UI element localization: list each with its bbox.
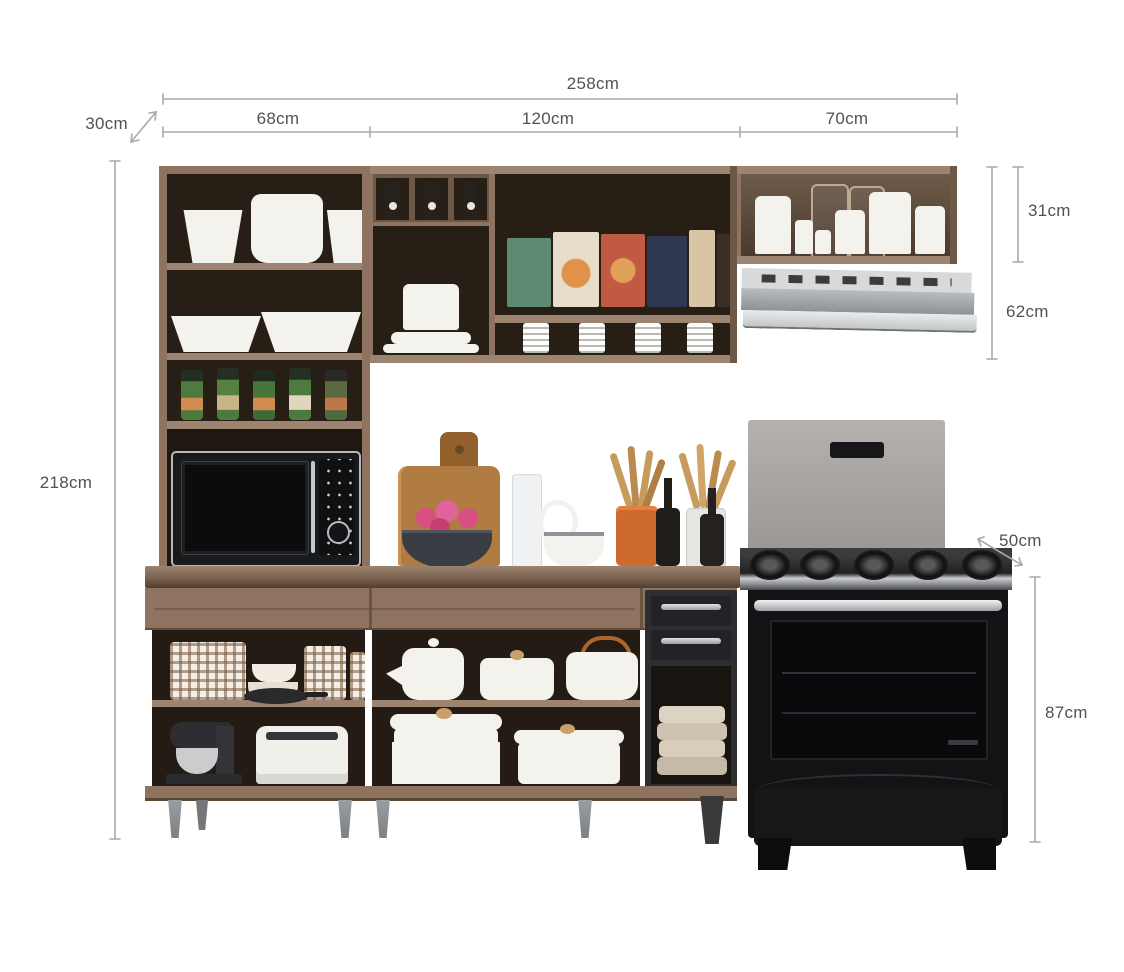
countertop: [145, 566, 740, 588]
left-cabinet-shelf-section-1: [167, 174, 362, 263]
dim-label-upper-assembly-height: 62cm: [1006, 302, 1049, 321]
folded-towel: [657, 723, 727, 740]
kettle-body: [566, 652, 638, 700]
canister: [869, 192, 911, 254]
canister: [795, 220, 813, 254]
fruit: [458, 508, 478, 528]
dim-label-upper-cabinet-height: 31cm: [1028, 201, 1071, 220]
burner: [750, 550, 790, 580]
base-drawer-unit: [645, 590, 737, 790]
range-hood-vents: [762, 274, 952, 286]
canister: [915, 206, 945, 254]
cutting-board-hole: [455, 445, 464, 454]
dim-label-wall-depth: 30cm: [70, 114, 128, 133]
cabinet-leg: [576, 800, 594, 838]
stove-body: [748, 590, 1008, 838]
patterned-canister: [350, 652, 365, 700]
dim-label-left-section: 68cm: [238, 109, 318, 128]
stockpot-knob: [436, 708, 452, 719]
white-bowl: [544, 532, 604, 568]
oven-rack-line: [782, 672, 976, 674]
microwave-niche: [167, 429, 362, 568]
spice-jar: [523, 323, 549, 353]
wine-rack: [373, 174, 489, 222]
cabinet-bottom-board: [370, 355, 737, 363]
dim-label-total-height: 218cm: [26, 473, 106, 492]
base-bottom-board: [145, 786, 737, 801]
stove-leg: [758, 838, 792, 870]
spice-jar: [635, 323, 661, 353]
cabinet-leg: [166, 800, 184, 838]
dim-total-height-line: [110, 161, 120, 839]
spice-bottle: [217, 368, 239, 420]
middle-cabinet-niche: [373, 226, 489, 355]
toaster-slots: [266, 732, 338, 740]
shelf-board: [167, 421, 362, 429]
cereal-box: [553, 232, 599, 307]
spice-jar: [687, 323, 713, 353]
range-hood-visor: [743, 310, 977, 333]
canister: [835, 210, 865, 254]
wine-cell: [376, 178, 409, 220]
wine-cell: [415, 178, 448, 220]
drawer: [651, 630, 731, 660]
dim-total-width-line: [163, 94, 957, 104]
frying-pan: [244, 688, 308, 704]
burner: [908, 550, 948, 580]
dim-stove-height-line: [1030, 577, 1040, 842]
dim-label-total-width: 258cm: [553, 74, 633, 93]
teapot-knob: [428, 638, 439, 647]
towel-niche: [651, 666, 731, 784]
oven-rack-line: [782, 712, 976, 714]
cabinet-top-board: [370, 166, 737, 174]
right-wall-cabinet: [737, 166, 957, 264]
teapot-body: [402, 648, 464, 700]
cereal-box: [647, 236, 687, 307]
base-cabinet-row: [145, 588, 737, 800]
microwave-knob: [327, 521, 350, 544]
bowl: [325, 210, 362, 263]
stove-leg: [962, 838, 996, 870]
drawer-handle: [661, 638, 721, 644]
spice-bottle: [289, 368, 311, 420]
stockpot-knob: [560, 724, 575, 734]
dim-label-middle-section: 120cm: [508, 109, 588, 128]
cabinet-top-board: [737, 166, 957, 174]
stand-mixer-base: [166, 774, 242, 784]
cereal-box: [717, 234, 730, 307]
cabinet-leg: [336, 800, 354, 838]
drawer-seam: [640, 588, 643, 628]
toaster: [256, 726, 348, 784]
wine-cell: [454, 178, 487, 220]
drawer-unit-leg: [698, 796, 726, 844]
burner: [854, 550, 894, 580]
dim-sections-line: [163, 127, 957, 137]
stand-mixer-bowl: [176, 748, 218, 774]
wine-bottle: [464, 181, 477, 219]
pot: [480, 658, 554, 700]
oven-window: [770, 620, 988, 760]
plate-stack: [391, 332, 471, 344]
right-cabinet-interior: [741, 174, 950, 256]
pot-lid-knob: [510, 650, 524, 660]
oven-brand-mark: [948, 740, 978, 745]
folded-towel: [659, 706, 725, 723]
wine-bottle: [425, 181, 438, 219]
drawer-groove: [155, 608, 635, 610]
middle-wall-cabinet: [370, 166, 737, 363]
cereal-box: [601, 234, 645, 307]
microwave-control-panel: [319, 459, 355, 555]
square-bowl: [171, 316, 261, 352]
stand-mixer-column: [216, 726, 234, 778]
plate-stack: [383, 344, 479, 353]
microwave-handle: [311, 461, 315, 553]
cabinet-leg: [374, 800, 392, 838]
bowl: [181, 210, 245, 263]
small-bowl: [252, 664, 296, 682]
microwave: [171, 451, 361, 567]
stove-back-panel: [748, 420, 945, 548]
cabinet-side-panel: [950, 166, 957, 264]
cereal-box: [689, 230, 715, 307]
burner: [962, 550, 1002, 580]
spice-bottle: [181, 370, 203, 420]
cereal-box: [507, 238, 551, 307]
wine-label: [428, 202, 436, 210]
folded-towel: [659, 740, 725, 757]
spice-bottle: [325, 370, 347, 420]
burner: [800, 550, 840, 580]
shelf-board: [495, 315, 730, 323]
spice-jar: [579, 323, 605, 353]
microwave-window: [181, 461, 309, 555]
stove-back-panel-handle-slot: [830, 442, 884, 458]
wine-bottle: [386, 181, 399, 219]
dim-label-right-section: 70cm: [807, 109, 887, 128]
range-hood: [741, 262, 978, 337]
patterned-canister: [170, 642, 246, 700]
pan-handle: [304, 692, 328, 697]
left-cabinet-spice-section: [167, 360, 362, 421]
folded-towel: [657, 757, 727, 775]
oven-handle: [754, 600, 1002, 611]
canister: [403, 284, 459, 330]
drawer-handle: [661, 604, 721, 610]
shelf-board: [167, 263, 362, 270]
drawer: [651, 596, 731, 626]
middle-cabinet-jar-shelf: [495, 323, 730, 355]
cabinet-side-panel: [730, 166, 737, 363]
shelf-board: [372, 700, 640, 707]
spice-bottle: [253, 370, 275, 420]
stove: [740, 548, 1012, 870]
dim-depth-line: [131, 112, 156, 142]
dim-upper-cabinet-line: [1013, 167, 1023, 262]
dim-depth-arrows: [131, 112, 156, 142]
dim-label-stove-height: 87cm: [1045, 703, 1088, 722]
wine-label: [389, 202, 397, 210]
cabinet-leg: [194, 800, 210, 830]
utensil-holder: [616, 506, 658, 566]
square-bowl: [261, 312, 361, 352]
canister: [815, 230, 831, 254]
base-left-interior: [152, 630, 365, 786]
bowl-stack: [251, 194, 323, 263]
product-dimension-diagram: 258cm 30cm 68cm 120cm 70cm 31cm 62cm 218…: [0, 0, 1124, 972]
stove-cooktop: [740, 548, 1012, 590]
wine-label: [467, 202, 475, 210]
wine-bottle: [700, 514, 724, 566]
stove-drawer: [754, 788, 1002, 846]
dim-upper-assembly-line: [987, 167, 997, 359]
dim-label-stove-depth: 50cm: [999, 531, 1042, 550]
canister: [755, 196, 791, 254]
wine-bottle: [656, 508, 680, 566]
shelf-board: [167, 353, 362, 360]
middle-cabinet-box-shelf: [495, 174, 730, 315]
base-middle-interior: [372, 630, 640, 786]
stockpot: [394, 728, 498, 782]
left-cabinet-shelf-section-2: [167, 270, 362, 353]
left-tall-cabinet: [159, 166, 370, 568]
stockpot: [518, 742, 620, 784]
